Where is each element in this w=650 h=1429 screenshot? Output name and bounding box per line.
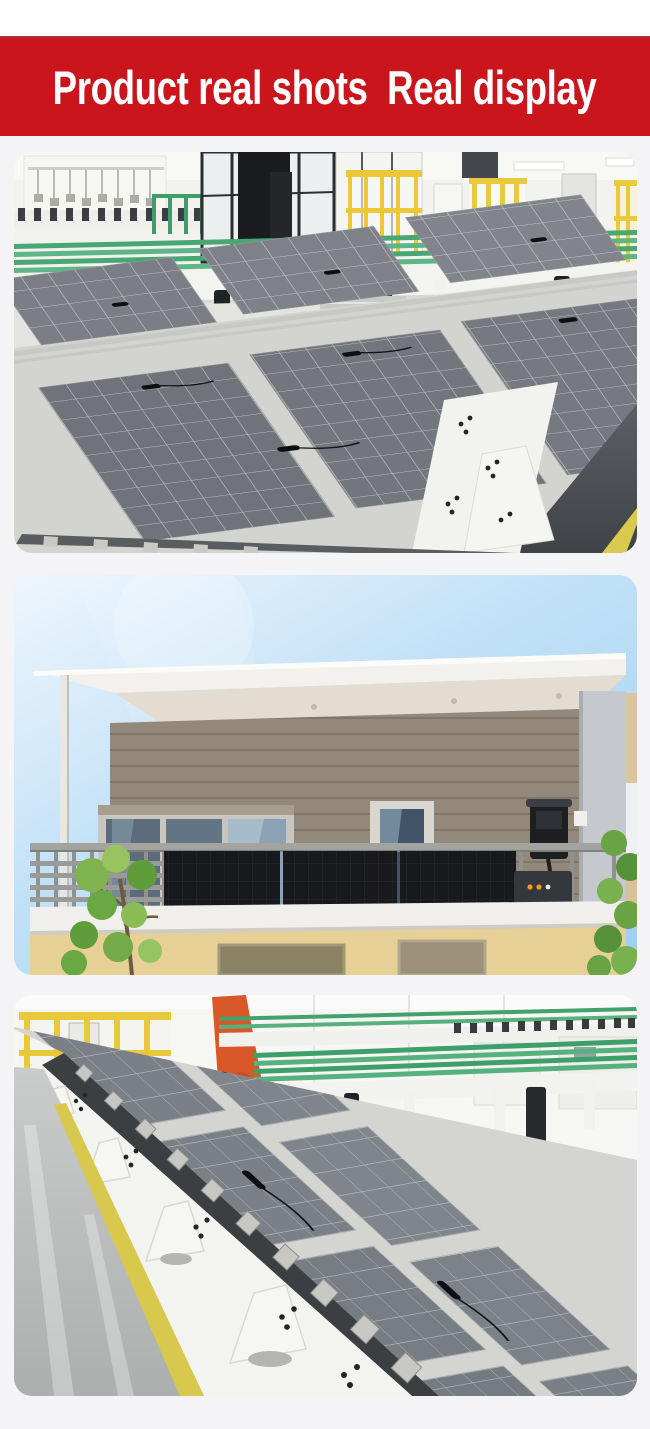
leveling-foot [160,1253,192,1265]
wall-plate [574,811,587,826]
product-photo-factory-line-1 [14,152,637,553]
ceiling-unit [462,152,498,178]
section-title: Product real shots Real display [53,60,597,115]
battery-led [527,884,532,889]
top-white-strip [0,0,650,36]
factory-ceiling [14,995,637,1009]
battery-led [546,885,551,890]
product-photo-factory-line-2 [14,995,637,1396]
section-header-banner: Product real shots Real display [0,36,650,136]
product-detail-section: Product real shots Real display [0,0,650,1429]
roof-column-shade [67,675,69,907]
corner-pillar-shade [579,691,583,921]
product-photo-balcony-installation [14,575,637,975]
photo-gallery [0,152,650,1396]
leveling-foot [248,1351,292,1367]
battery-led [536,884,541,889]
hanging-tool-rack [24,156,166,214]
